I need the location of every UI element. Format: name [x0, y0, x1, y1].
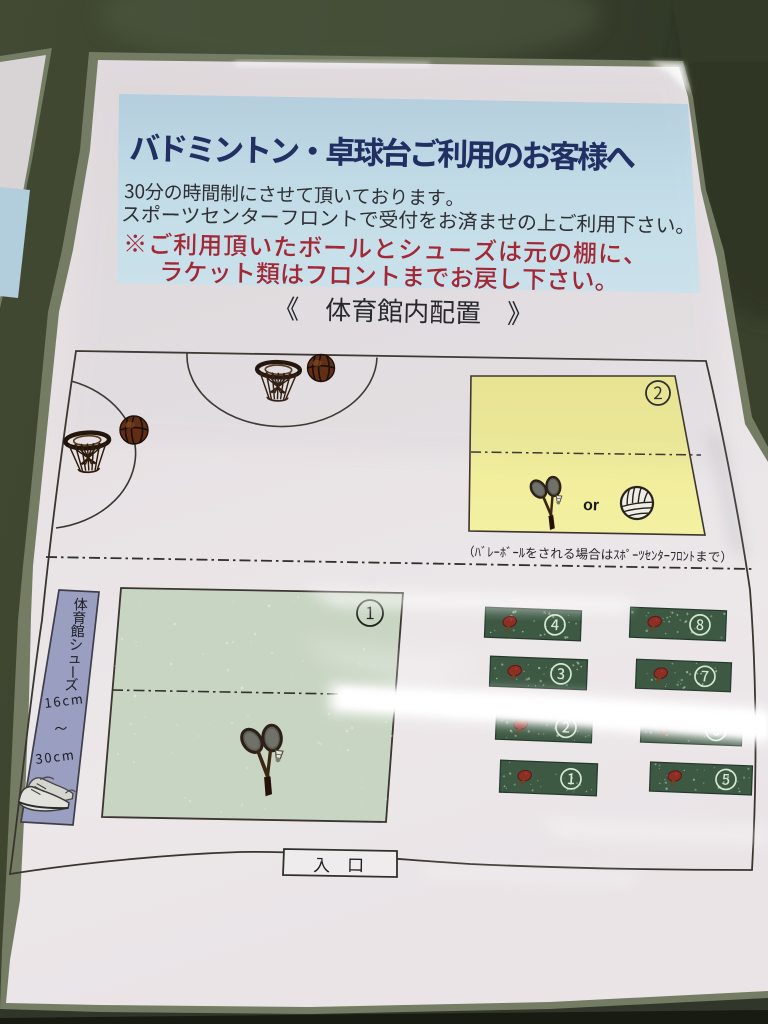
svg-text:or: or	[583, 497, 599, 514]
